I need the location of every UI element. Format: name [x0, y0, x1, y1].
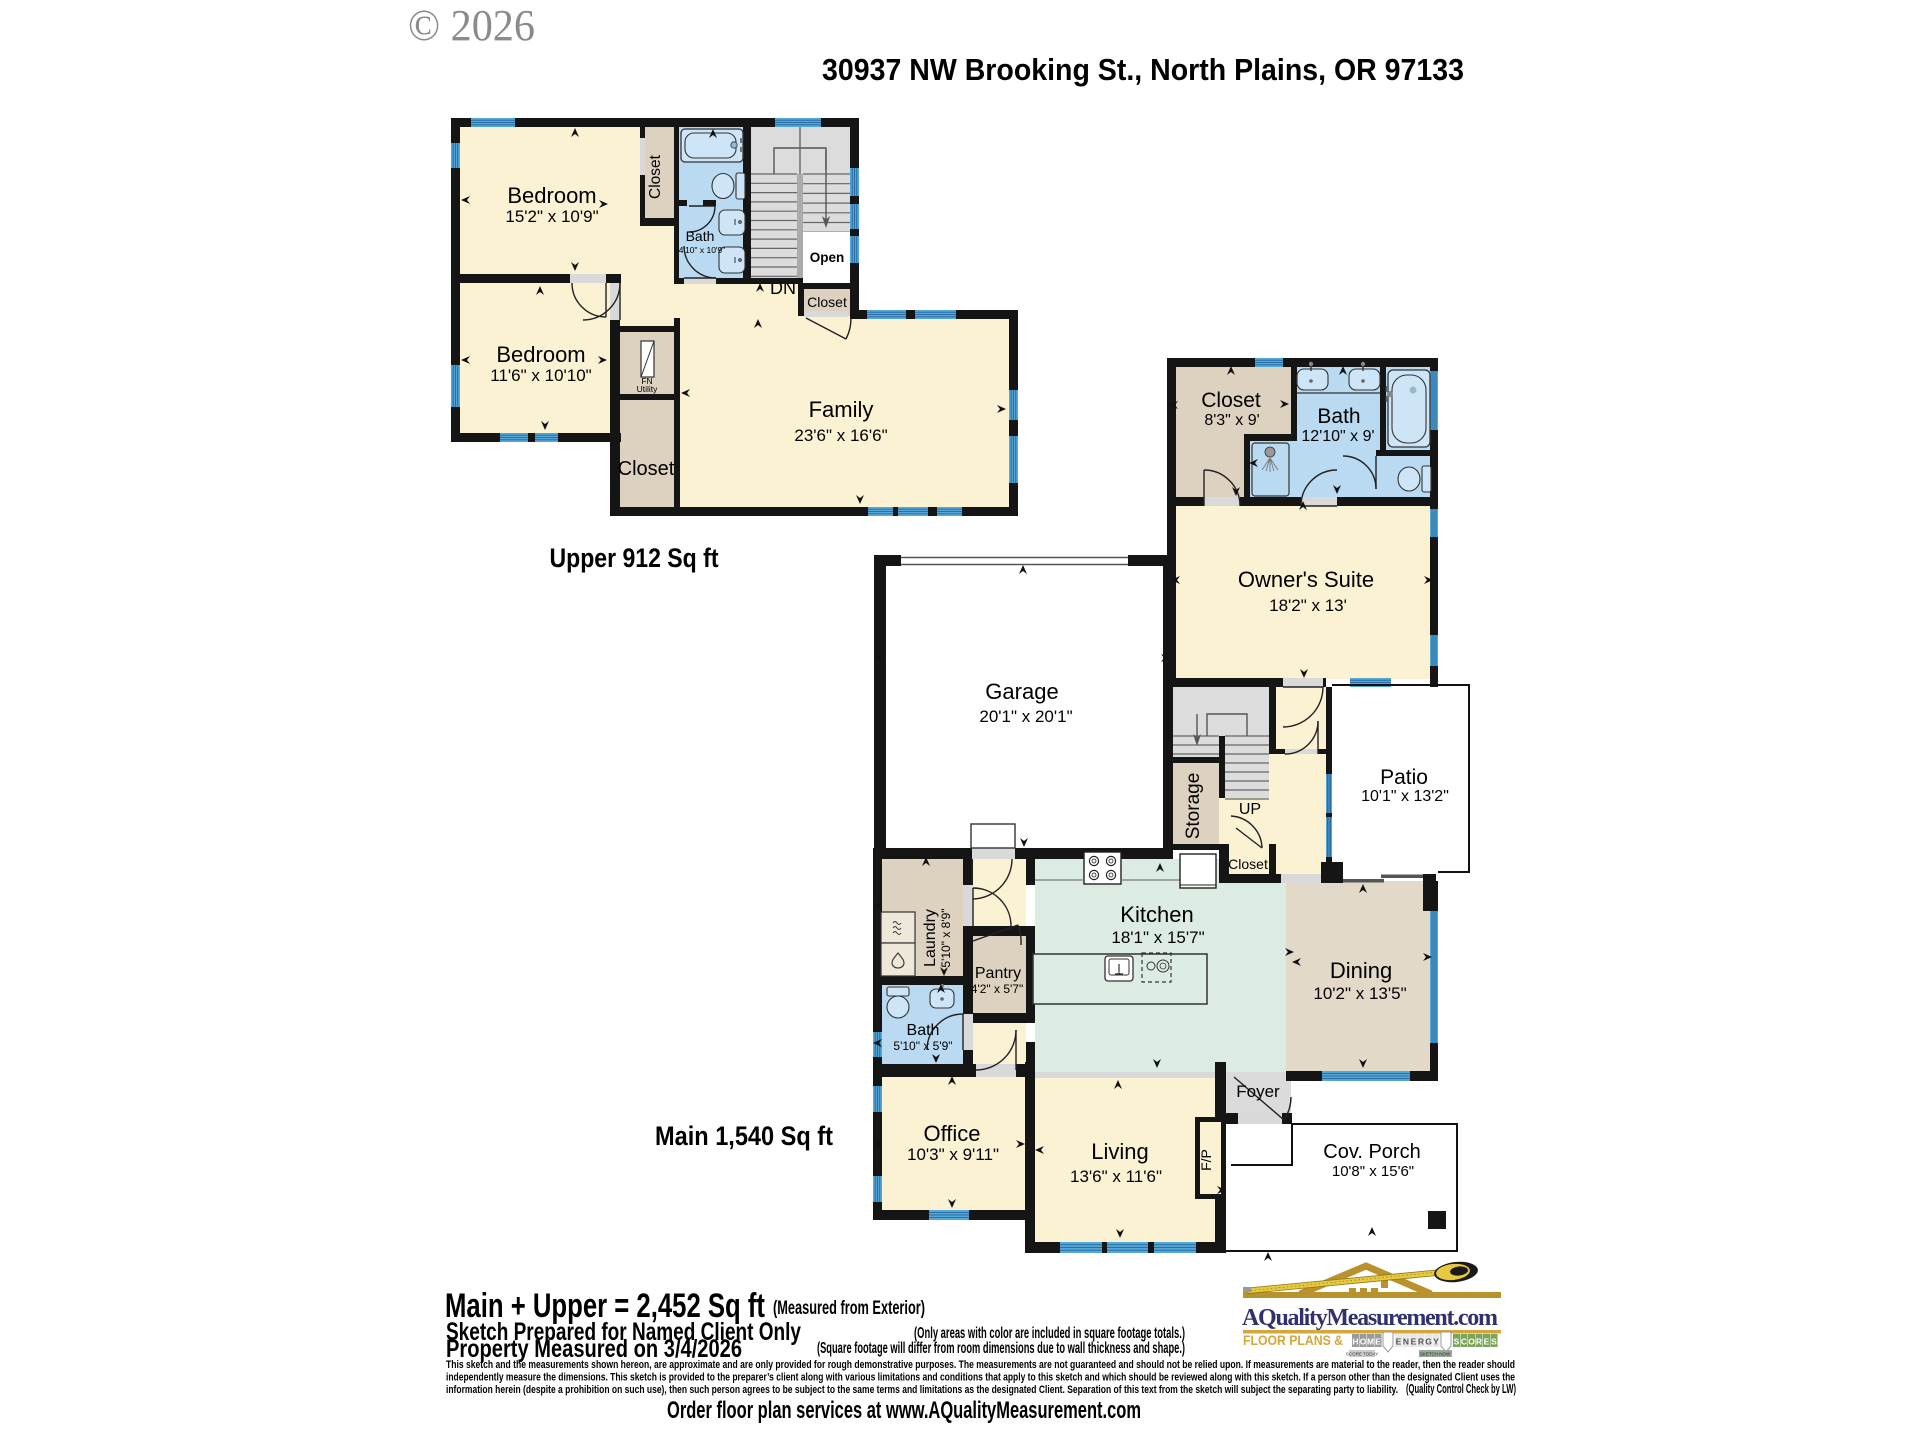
svg-text:(Quality Control Check by LW): (Quality Control Check by LW): [1406, 1382, 1516, 1396]
svg-text:N: N: [1403, 1337, 1409, 1347]
svg-text:F/P: F/P: [1198, 1149, 1214, 1171]
svg-text:SKETCH NOW: SKETCH NOW: [1420, 1352, 1451, 1357]
svg-text:23'6" x 16'6": 23'6" x 16'6": [794, 426, 887, 445]
svg-text:11'6" x 10'10": 11'6" x 10'10": [490, 366, 591, 385]
svg-text:M: M: [1367, 1337, 1374, 1347]
svg-text:AQualityMeasurement.com: AQualityMeasurement.com: [1242, 1305, 1498, 1331]
svg-text:Foyer: Foyer: [1236, 1082, 1280, 1101]
svg-text:18'2" x 13': 18'2" x 13': [1269, 596, 1347, 615]
svg-text:G: G: [1425, 1337, 1432, 1347]
svg-text:Garage: Garage: [985, 679, 1058, 704]
svg-text:(Square footage will differ fr: (Square footage will differ from room di…: [817, 1340, 1185, 1357]
svg-text:H: H: [1352, 1337, 1358, 1347]
svg-text:E: E: [1396, 1337, 1402, 1347]
svg-text:Living: Living: [1091, 1139, 1148, 1164]
svg-text:Pantry: Pantry: [975, 965, 1021, 982]
svg-text:Y: Y: [1433, 1337, 1439, 1347]
svg-text:Cov. Porch: Cov. Porch: [1323, 1141, 1420, 1163]
svg-text:Utility: Utility: [637, 384, 659, 394]
svg-text:O: O: [1468, 1337, 1475, 1347]
svg-text:Owner's Suite: Owner's Suite: [1238, 567, 1374, 592]
svg-text:Bedroom: Bedroom: [496, 342, 585, 367]
svg-text:information herein (despite a: information herein (despite a prohibitio…: [446, 1384, 1398, 1396]
svg-text:Order floor plan services at w: Order floor plan services at www.AQualit…: [667, 1397, 1141, 1424]
svg-text:Patio: Patio: [1380, 766, 1428, 789]
svg-text:20'1" x 20'1": 20'1" x 20'1": [979, 707, 1072, 726]
svg-text:8'3" x 9': 8'3" x 9': [1204, 412, 1259, 429]
svg-text:E: E: [1375, 1337, 1381, 1347]
svg-text:Storage: Storage: [1183, 773, 1204, 840]
svg-text:SCORE TODAY: SCORE TODAY: [1346, 1352, 1378, 1357]
svg-text:R: R: [1476, 1337, 1482, 1347]
svg-text:E: E: [1484, 1337, 1490, 1347]
svg-text:Dining: Dining: [1330, 958, 1392, 983]
svg-text:4'2" x 5'7": 4'2" x 5'7": [971, 982, 1023, 996]
svg-text:Bedroom: Bedroom: [507, 183, 596, 208]
svg-text:Bath: Bath: [686, 228, 715, 244]
svg-text:Kitchen: Kitchen: [1120, 902, 1193, 927]
svg-text:4'10" x 10'9": 4'10" x 10'9": [679, 245, 726, 255]
svg-text:FLOOR PLANS &: FLOOR PLANS &: [1243, 1333, 1343, 1348]
svg-text:Closet: Closet: [1228, 856, 1268, 872]
svg-text:Laundry: Laundry: [922, 909, 939, 967]
svg-text:R: R: [1418, 1337, 1424, 1347]
svg-text:30937 NW Brooking St., North P: 30937 NW Brooking St., North Plains, OR …: [822, 52, 1464, 87]
svg-text:Main 1,540 Sq ft: Main 1,540 Sq ft: [655, 1121, 833, 1151]
svg-text:UP: UP: [1239, 801, 1261, 818]
svg-text:Office: Office: [923, 1121, 980, 1146]
svg-text:18'1" x 15'7": 18'1" x 15'7": [1111, 928, 1204, 947]
svg-text:C: C: [1461, 1337, 1467, 1347]
svg-text:© 2026: © 2026: [408, 1, 535, 50]
svg-text:10'2" x 13'5": 10'2" x 13'5": [1313, 984, 1406, 1003]
svg-text:O: O: [1360, 1337, 1367, 1347]
svg-text:12'10" x 9': 12'10" x 9': [1301, 428, 1374, 445]
svg-text:S: S: [1454, 1337, 1460, 1347]
svg-text:10'3" x 9'11": 10'3" x 9'11": [907, 1145, 999, 1164]
svg-text:Family: Family: [809, 397, 874, 422]
svg-text:This sketch and the measuremen: This sketch and the measurements shown h…: [446, 1359, 1515, 1371]
svg-text:independently measure the dime: independently measure the dimensions. Th…: [446, 1372, 1515, 1384]
svg-text:Bath: Bath: [907, 1022, 940, 1039]
svg-text:10'8" x 15'6": 10'8" x 15'6": [1332, 1163, 1414, 1180]
svg-text:13'6" x 11'6": 13'6" x 11'6": [1070, 1167, 1162, 1186]
svg-text:Closet: Closet: [618, 458, 675, 480]
svg-text:Upper 912 Sq ft: Upper 912 Sq ft: [550, 543, 719, 573]
svg-text:5'10" x 5'9": 5'10" x 5'9": [893, 1039, 952, 1053]
svg-text:Open: Open: [810, 250, 845, 265]
svg-text:E: E: [1411, 1337, 1417, 1347]
svg-text:10'1" x 13'2": 10'1" x 13'2": [1361, 788, 1449, 805]
svg-text:Closet: Closet: [807, 294, 847, 310]
svg-text:(Measured from Exterior): (Measured from Exterior): [773, 1298, 925, 1319]
svg-text:Bath: Bath: [1317, 405, 1360, 428]
svg-text:Closet: Closet: [1201, 389, 1261, 412]
svg-text:5'10" x 8'9": 5'10" x 8'9": [939, 908, 953, 967]
svg-text:15'2" x 10'9": 15'2" x 10'9": [505, 207, 598, 226]
svg-text:S: S: [1491, 1337, 1497, 1347]
svg-text:Closet: Closet: [647, 154, 664, 199]
